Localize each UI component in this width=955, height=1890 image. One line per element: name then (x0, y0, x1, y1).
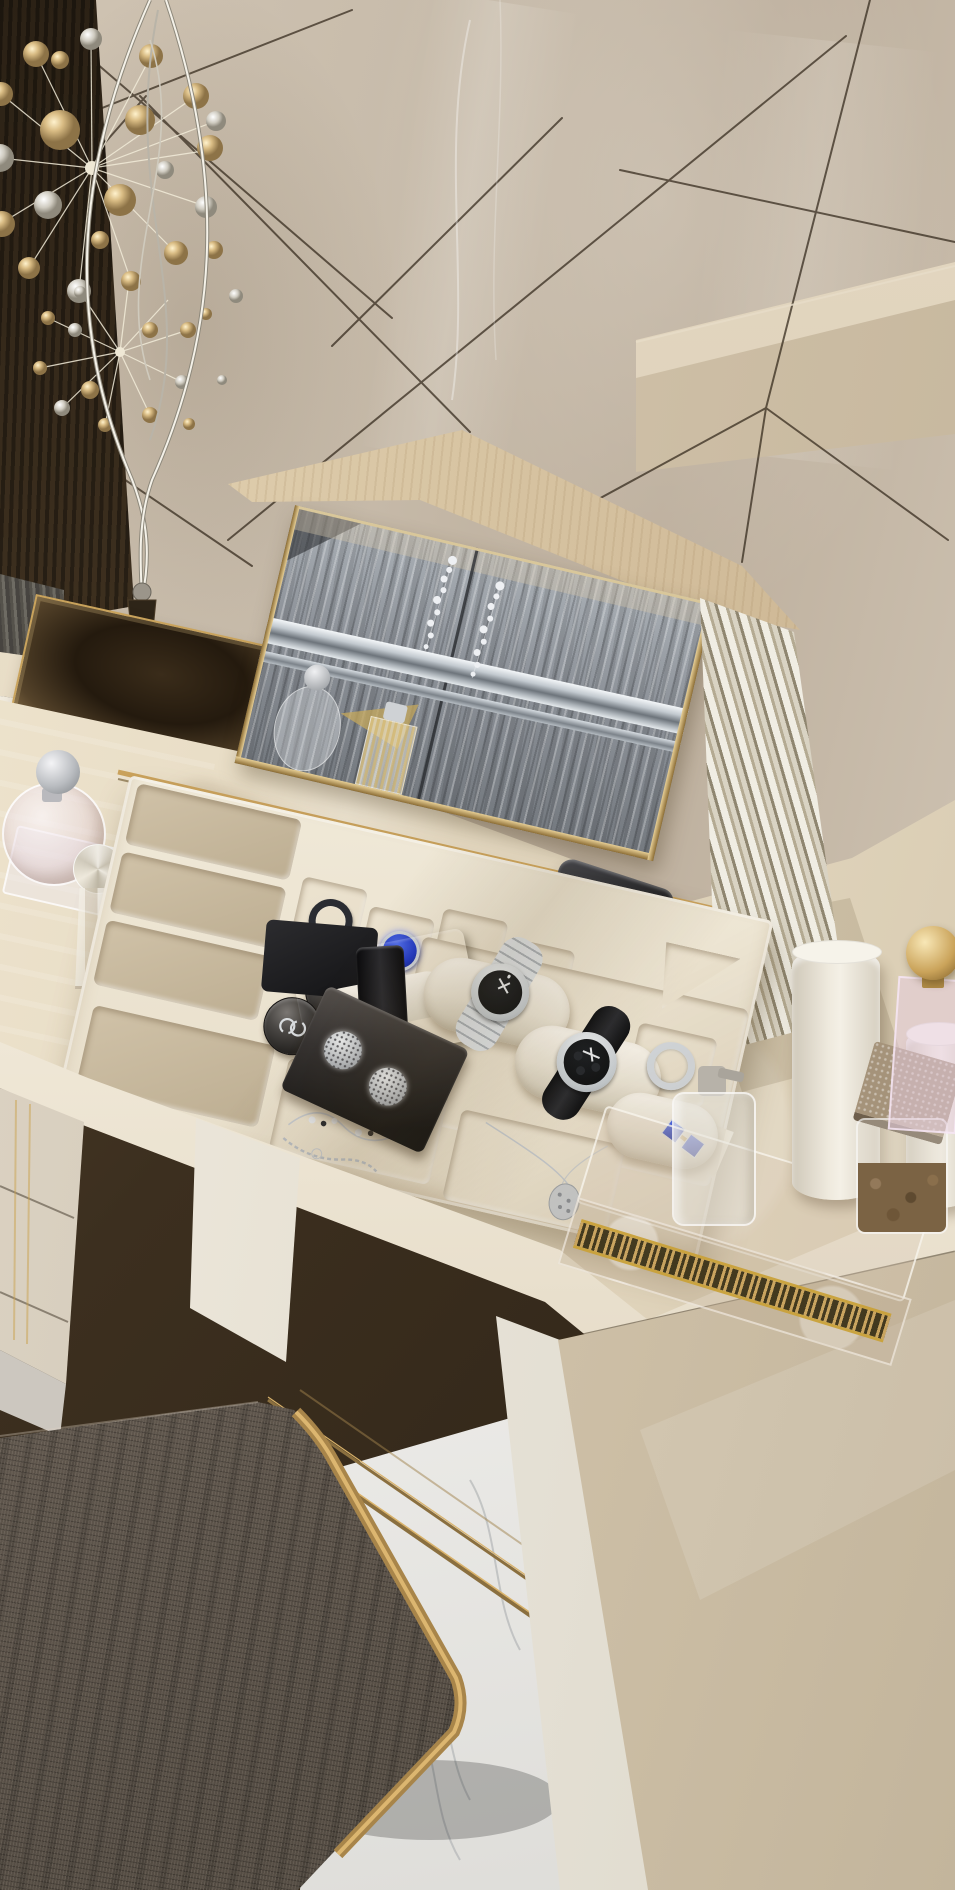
pink-acrylic-perfume-stand (888, 976, 955, 1134)
gold-sphere-stopper (906, 926, 955, 980)
scene (0, 0, 955, 1890)
ledge-highlight (636, 266, 955, 342)
potpourri-jar (856, 1118, 948, 1234)
potpourri (858, 1163, 946, 1232)
lamp-wall-reflection (452, 20, 470, 400)
pump-bottle (672, 1092, 756, 1226)
flacon-silver-cap (36, 750, 80, 794)
lamp-joint (133, 583, 151, 601)
